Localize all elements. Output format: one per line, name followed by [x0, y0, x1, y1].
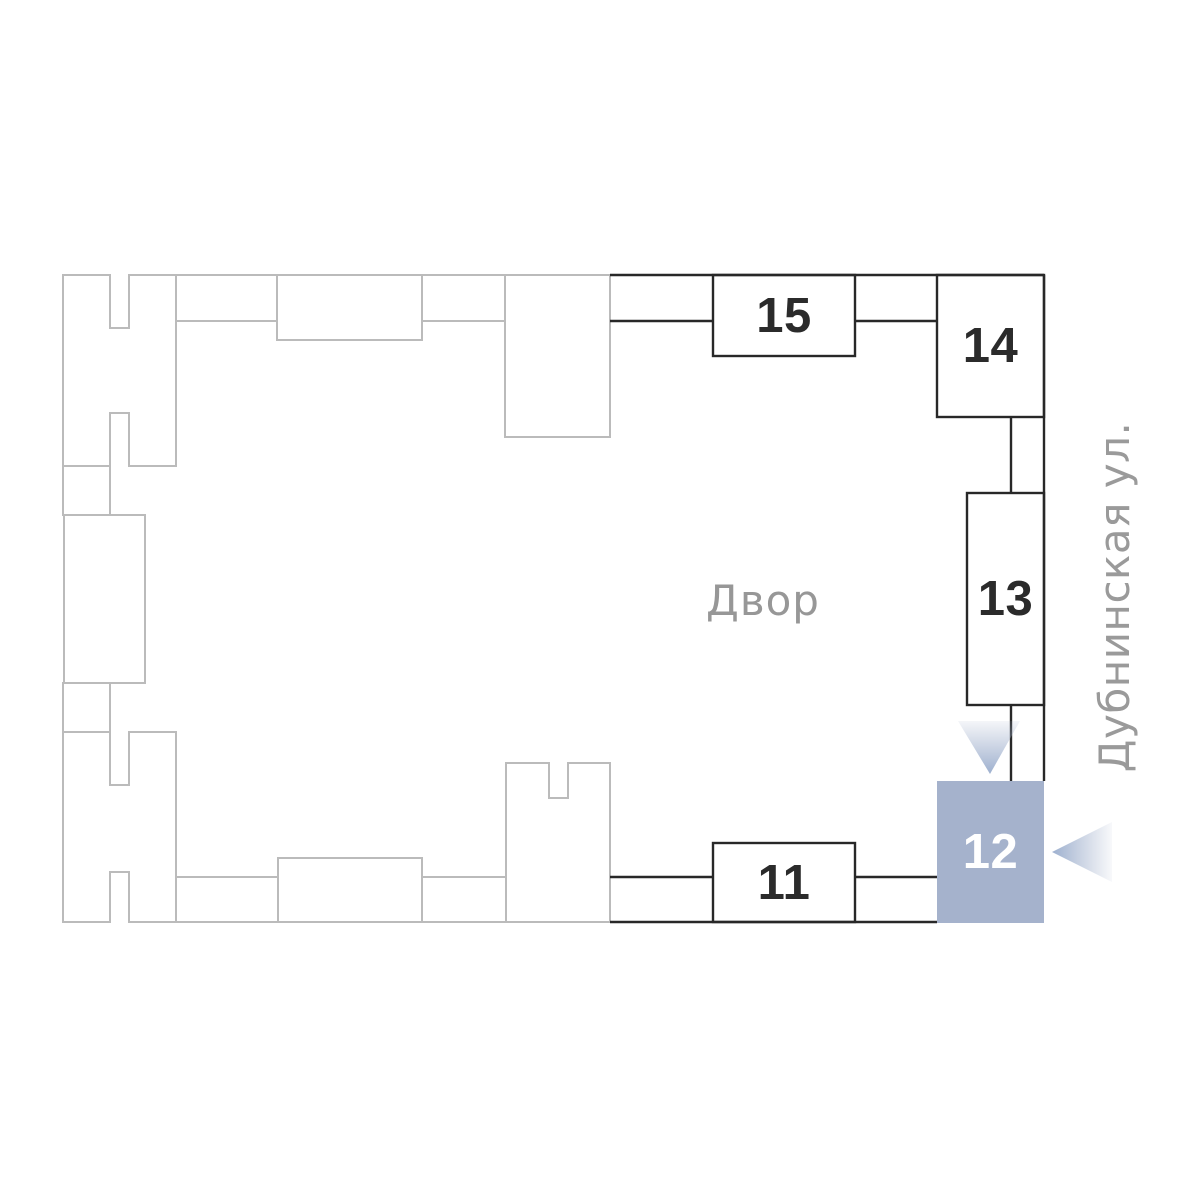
gray-building-left-small-upper [63, 466, 110, 515]
building-11-shape[interactable] [713, 843, 855, 922]
gray-building-left-protruding [64, 515, 145, 683]
gray-building-bottom-mid [278, 858, 422, 922]
gray-building-top-left [63, 275, 176, 466]
gray-building-bottom-left [63, 732, 176, 922]
gray-building-top-mid [277, 275, 422, 340]
gray-building-bottom-tall [506, 763, 610, 922]
floor-plan-svg [0, 0, 1200, 1200]
selected-arrow-left-icon [1052, 822, 1112, 882]
building-13-shape[interactable] [967, 493, 1044, 705]
gray-building-left-small-lower [63, 683, 110, 732]
building-12-shape-selected[interactable] [937, 781, 1044, 923]
building-14-shape[interactable] [937, 275, 1044, 417]
street-label: Дубнинская ул. [1088, 387, 1140, 807]
courtyard-label: Двор [613, 572, 913, 628]
building-15-shape[interactable] [713, 275, 855, 356]
gray-building-top-tall [505, 275, 610, 437]
site-plan: 15 14 13 12 11 Двор Дубнинская ул. [0, 0, 1200, 1200]
gray-buildings-outline [63, 275, 610, 922]
